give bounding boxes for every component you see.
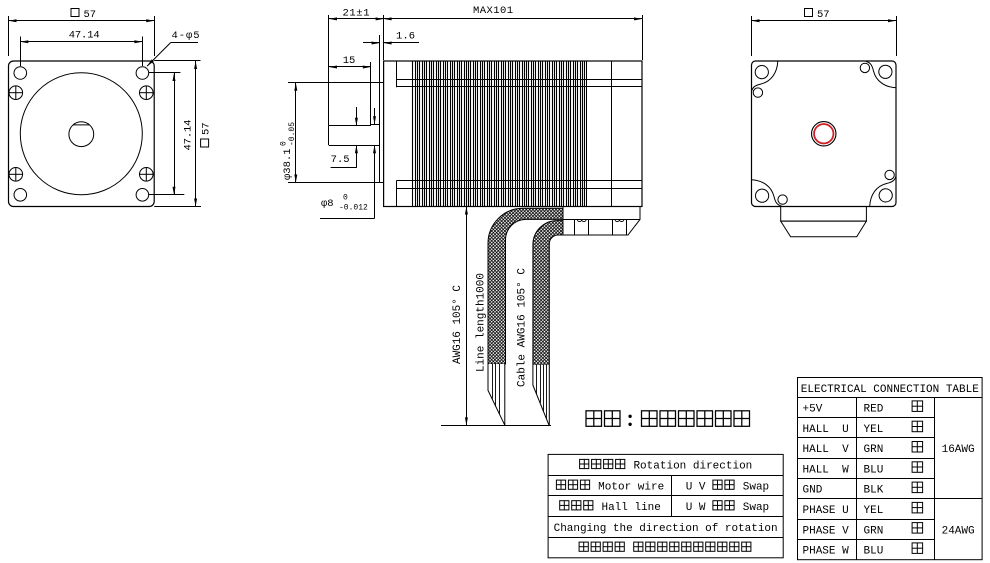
svg-text:HALL V: HALL V [803,444,850,456]
svg-text:7.5: 7.5 [331,154,350,166]
svg-text:φ8: φ8 [321,198,334,210]
svg-text:BLU: BLU [864,464,884,476]
svg-text:MAX101: MAX101 [473,5,513,17]
svg-text:YEL: YEL [864,505,884,517]
svg-text:PHASE W: PHASE W [803,546,850,558]
svg-text:U W: U W [686,502,712,514]
svg-text:-0.05: -0.05 [288,122,297,146]
svg-text:21±1: 21±1 [343,8,370,20]
svg-text:BLU: BLU [864,546,884,558]
svg-text:4-φ5: 4-φ5 [172,30,200,42]
svg-text:0: 0 [343,194,348,203]
svg-text:RED: RED [864,404,884,416]
svg-text:Motor wire: Motor wire [592,481,665,493]
svg-text:Hall line: Hall line [595,502,661,514]
svg-text:φ38.1: φ38.1 [282,148,294,180]
svg-text:PHASE V: PHASE V [803,525,850,537]
svg-text:GRN: GRN [864,444,884,456]
svg-text:GND: GND [803,485,823,497]
svg-text:1.6: 1.6 [396,31,415,43]
svg-text:GRN: GRN [864,525,884,537]
svg-text:YEL: YEL [864,424,884,436]
svg-text:+5V: +5V [803,404,823,416]
svg-text:Rotation direction: Rotation direction [627,461,752,473]
svg-text:ELECTRICAL CONNECTION TABLE: ELECTRICAL CONNECTION TABLE [801,384,979,396]
svg-text:AWG16 105° C: AWG16 105° C [452,285,464,364]
svg-text:HALL U: HALL U [803,424,849,436]
svg-text:PHASE U: PHASE U [803,505,849,517]
svg-text:Line length1000: Line length1000 [476,273,488,372]
svg-text:-0.012: -0.012 [339,204,368,213]
svg-text:Swap: Swap [736,502,769,514]
svg-text:Changing the direction of rota: Changing the direction of rotation [554,523,778,535]
svg-text:24AWG: 24AWG [942,525,975,537]
svg-text:57: 57 [817,9,830,21]
svg-text:47.14: 47.14 [183,120,195,151]
svg-text:U V: U V [686,481,712,493]
svg-text:Cable AWG16 105° C: Cable AWG16 105° C [517,268,529,387]
svg-text:Swap: Swap [736,481,769,493]
svg-text:57: 57 [201,122,213,135]
svg-text:BLK: BLK [864,485,884,497]
svg-text:57: 57 [84,9,97,21]
svg-text:HALL W: HALL W [803,464,850,476]
svg-text:16AWG: 16AWG [942,444,975,456]
svg-text:15: 15 [343,55,356,67]
svg-text:47.14: 47.14 [69,30,100,42]
